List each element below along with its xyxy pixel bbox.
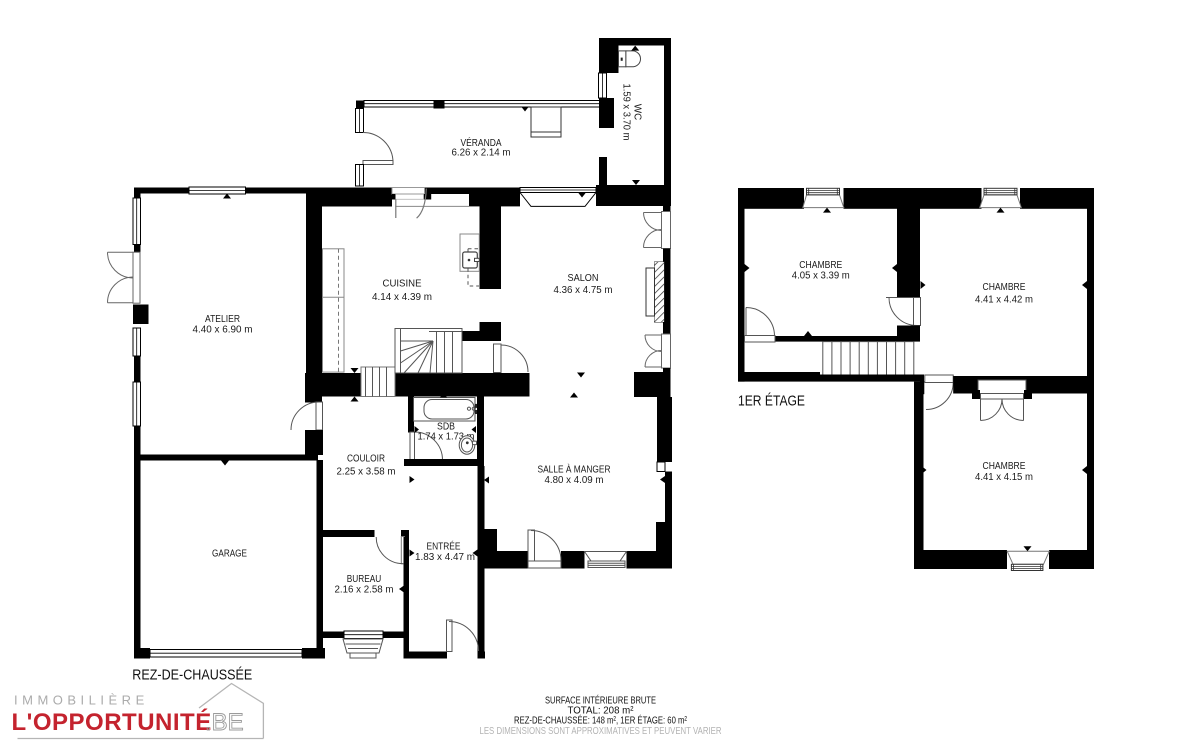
svg-text:CUISINE: CUISINE (383, 279, 422, 290)
svg-text:4.40 x 6.90 m: 4.40 x 6.90 m (193, 324, 253, 335)
svg-text:CHAMBRE: CHAMBRE (983, 282, 1026, 293)
svg-text:2.25 x 3.58 m: 2.25 x 3.58 m (337, 467, 396, 478)
svg-text:4.14 x 4.39 m: 4.14 x 4.39 m (372, 292, 432, 303)
svg-text:CHAMBRE: CHAMBRE (983, 461, 1026, 472)
svg-text:GARAGE: GARAGE (212, 548, 247, 559)
svg-text:4.41 x 4.15 m: 4.41 x 4.15 m (975, 472, 1033, 483)
svg-text:ATELIER: ATELIER (205, 314, 240, 325)
svg-text:LES DIMENSIONS SONT APPROXIMAT: LES DIMENSIONS SONT APPROXIMATIVES ET PE… (480, 725, 722, 737)
svg-text:4.05 x 3.39 m: 4.05 x 3.39 m (792, 270, 850, 281)
svg-text:1.83 x 4.47 m: 1.83 x 4.47 m (415, 552, 475, 563)
svg-text:ENTRÉE: ENTRÉE (427, 542, 461, 553)
svg-text:IMMOBILIÈRE: IMMOBILIÈRE (14, 693, 149, 708)
svg-text:2.16 x 2.58 m: 2.16 x 2.58 m (335, 585, 394, 596)
svg-text:SALON: SALON (568, 273, 599, 284)
svg-text:BUREAU: BUREAU (347, 574, 382, 585)
svg-text:REZ-DE-CHAUSSÉE: REZ-DE-CHAUSSÉE (132, 667, 252, 684)
svg-text:WC: WC (632, 104, 643, 120)
svg-text:4.36 x 4.75 m: 4.36 x 4.75 m (554, 285, 613, 296)
svg-text:.BE: .BE (205, 709, 244, 736)
svg-text:1.59 x 3.70 m: 1.59 x 3.70 m (621, 84, 632, 141)
svg-text:L'OPPORTUNITÉ: L'OPPORTUNITÉ (12, 708, 212, 736)
svg-text:4.41 x 4.42 m: 4.41 x 4.42 m (975, 294, 1033, 305)
svg-text:COULOIR: COULOIR (347, 454, 385, 465)
svg-text:4.80 x 4.09 m: 4.80 x 4.09 m (545, 475, 604, 486)
svg-text:6.26 x 2.14 m: 6.26 x 2.14 m (452, 148, 511, 159)
svg-text:CHAMBRE: CHAMBRE (799, 260, 842, 271)
svg-text:1ER ÉTAGE: 1ER ÉTAGE (738, 393, 805, 410)
